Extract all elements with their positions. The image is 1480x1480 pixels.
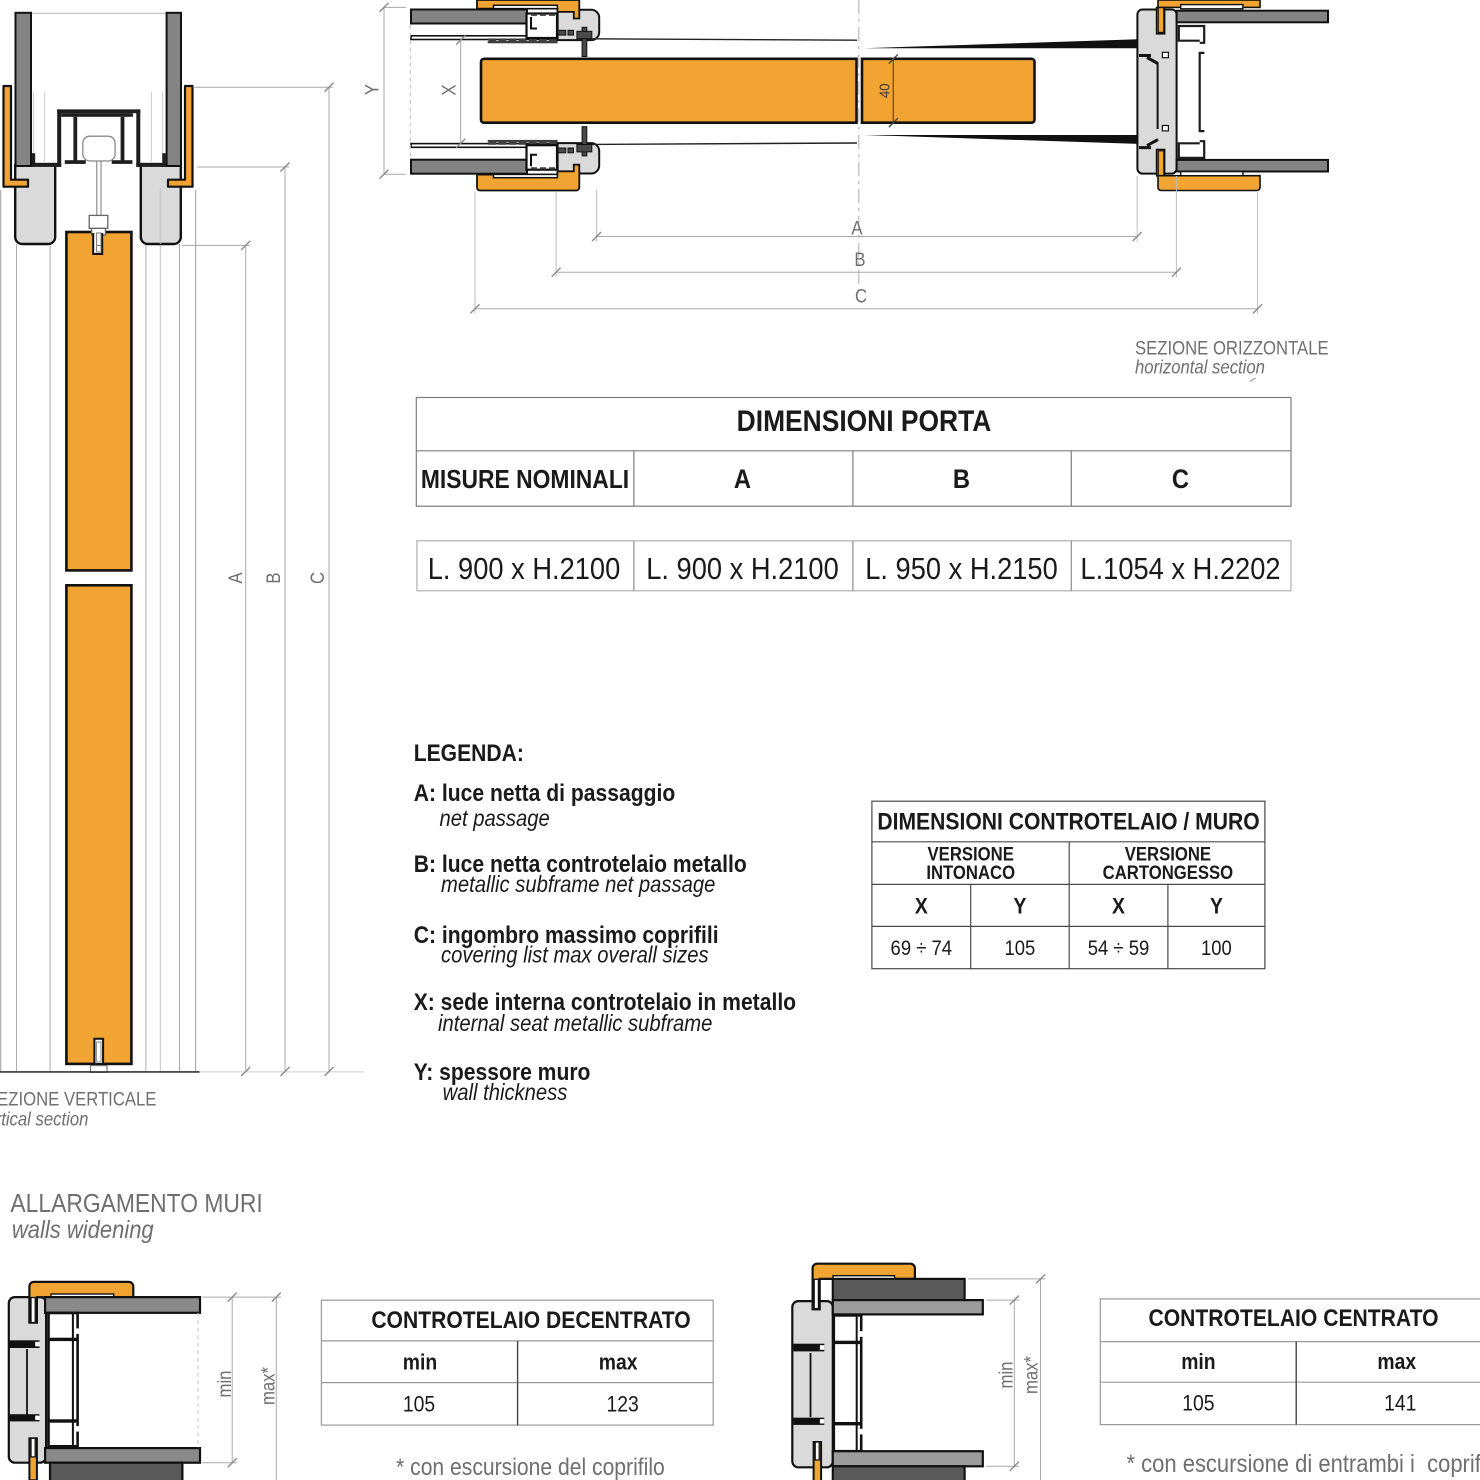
svg-text:123: 123 xyxy=(606,1392,638,1416)
svg-text:C: C xyxy=(1172,465,1189,495)
svg-text:DIMENSIONI PORTA: DIMENSIONI PORTA xyxy=(737,403,992,437)
svg-text:C: C xyxy=(855,285,867,306)
svg-text:MISURE NOMINALI: MISURE NOMINALI xyxy=(421,466,629,495)
svg-text:105: 105 xyxy=(1182,1391,1214,1415)
svg-text:min: min xyxy=(403,1350,437,1374)
svg-text:40: 40 xyxy=(876,83,893,98)
svg-text:B: B xyxy=(953,465,970,495)
svg-text:* con escursione del coprifilo: * con escursione del coprifilo xyxy=(396,1454,665,1480)
svg-text:L. 900 x H.2100: L. 900 x H.2100 xyxy=(646,552,839,586)
svg-text:69 ÷ 74: 69 ÷ 74 xyxy=(891,937,952,960)
svg-text:wall thickness: wall thickness xyxy=(443,1079,568,1106)
svg-text:max*: max* xyxy=(1021,1356,1042,1394)
svg-text:internal seat metallic subfram: internal seat metallic subframe xyxy=(438,1010,712,1037)
svg-text:vertical section: vertical section xyxy=(0,1109,89,1130)
svg-text:141: 141 xyxy=(1384,1391,1416,1415)
svg-text:covering list max overall size: covering list max overall sizes xyxy=(441,941,709,968)
svg-text:X: X xyxy=(915,894,928,918)
svg-text:walls widening: walls widening xyxy=(12,1216,154,1244)
svg-text:B: B xyxy=(854,249,865,270)
svg-text:min: min xyxy=(214,1371,235,1398)
svg-text:100: 100 xyxy=(1201,937,1232,960)
svg-text:CONTROTELAIO CENTRATO: CONTROTELAIO CENTRATO xyxy=(1148,1305,1438,1332)
svg-text:LEGENDA:: LEGENDA: xyxy=(414,740,524,767)
svg-text:L.1054 x H.2202: L.1054 x H.2202 xyxy=(1080,552,1280,586)
svg-text:* con escursione di entrambi i: * con escursione di entrambi i coprifili xyxy=(1127,1450,1480,1478)
svg-text:max*: max* xyxy=(258,1367,279,1405)
svg-text:SEZIONE VERTICALE: SEZIONE VERTICALE xyxy=(0,1089,157,1110)
svg-text:Y: Y xyxy=(1013,894,1026,918)
svg-text:horizontal section: horizontal section xyxy=(1135,357,1265,378)
svg-text:min: min xyxy=(1181,1350,1215,1374)
svg-text:Y: Y xyxy=(362,84,383,95)
svg-text:X: X xyxy=(439,84,460,95)
svg-text:X: X xyxy=(1112,894,1125,918)
svg-text:net passage: net passage xyxy=(440,805,550,832)
svg-text:L. 900 x H.2100: L. 900 x H.2100 xyxy=(428,552,621,586)
svg-text:max: max xyxy=(599,1350,638,1374)
svg-text:A: luce netta di passaggio: A: luce netta di passaggio xyxy=(414,780,676,807)
svg-text:max: max xyxy=(1377,1350,1416,1374)
svg-text:105: 105 xyxy=(1004,937,1035,960)
svg-text:CONTROTELAIO DECENTRATO: CONTROTELAIO DECENTRATO xyxy=(371,1307,690,1334)
svg-text:A: A xyxy=(851,218,862,239)
svg-text:A: A xyxy=(734,465,751,495)
svg-text:C: C xyxy=(307,572,328,584)
svg-text:L. 950 x H.2150: L. 950 x H.2150 xyxy=(865,552,1058,586)
svg-text:INTONACO: INTONACO xyxy=(926,862,1015,883)
svg-text:metallic subframe net passage: metallic subframe net passage xyxy=(441,871,715,898)
svg-text:A: A xyxy=(225,572,246,583)
svg-text:CARTONGESSO: CARTONGESSO xyxy=(1103,862,1234,883)
svg-text:54 ÷ 59: 54 ÷ 59 xyxy=(1088,937,1149,960)
svg-text:105: 105 xyxy=(403,1392,435,1416)
svg-text:min: min xyxy=(996,1362,1017,1389)
svg-text:DIMENSIONI CONTROTELAIO / MURO: DIMENSIONI CONTROTELAIO / MURO xyxy=(877,808,1259,835)
svg-text:Y: Y xyxy=(1210,894,1223,918)
svg-text:B: B xyxy=(263,572,284,583)
svg-text:ALLARGAMENTO MURI: ALLARGAMENTO MURI xyxy=(10,1190,262,1219)
